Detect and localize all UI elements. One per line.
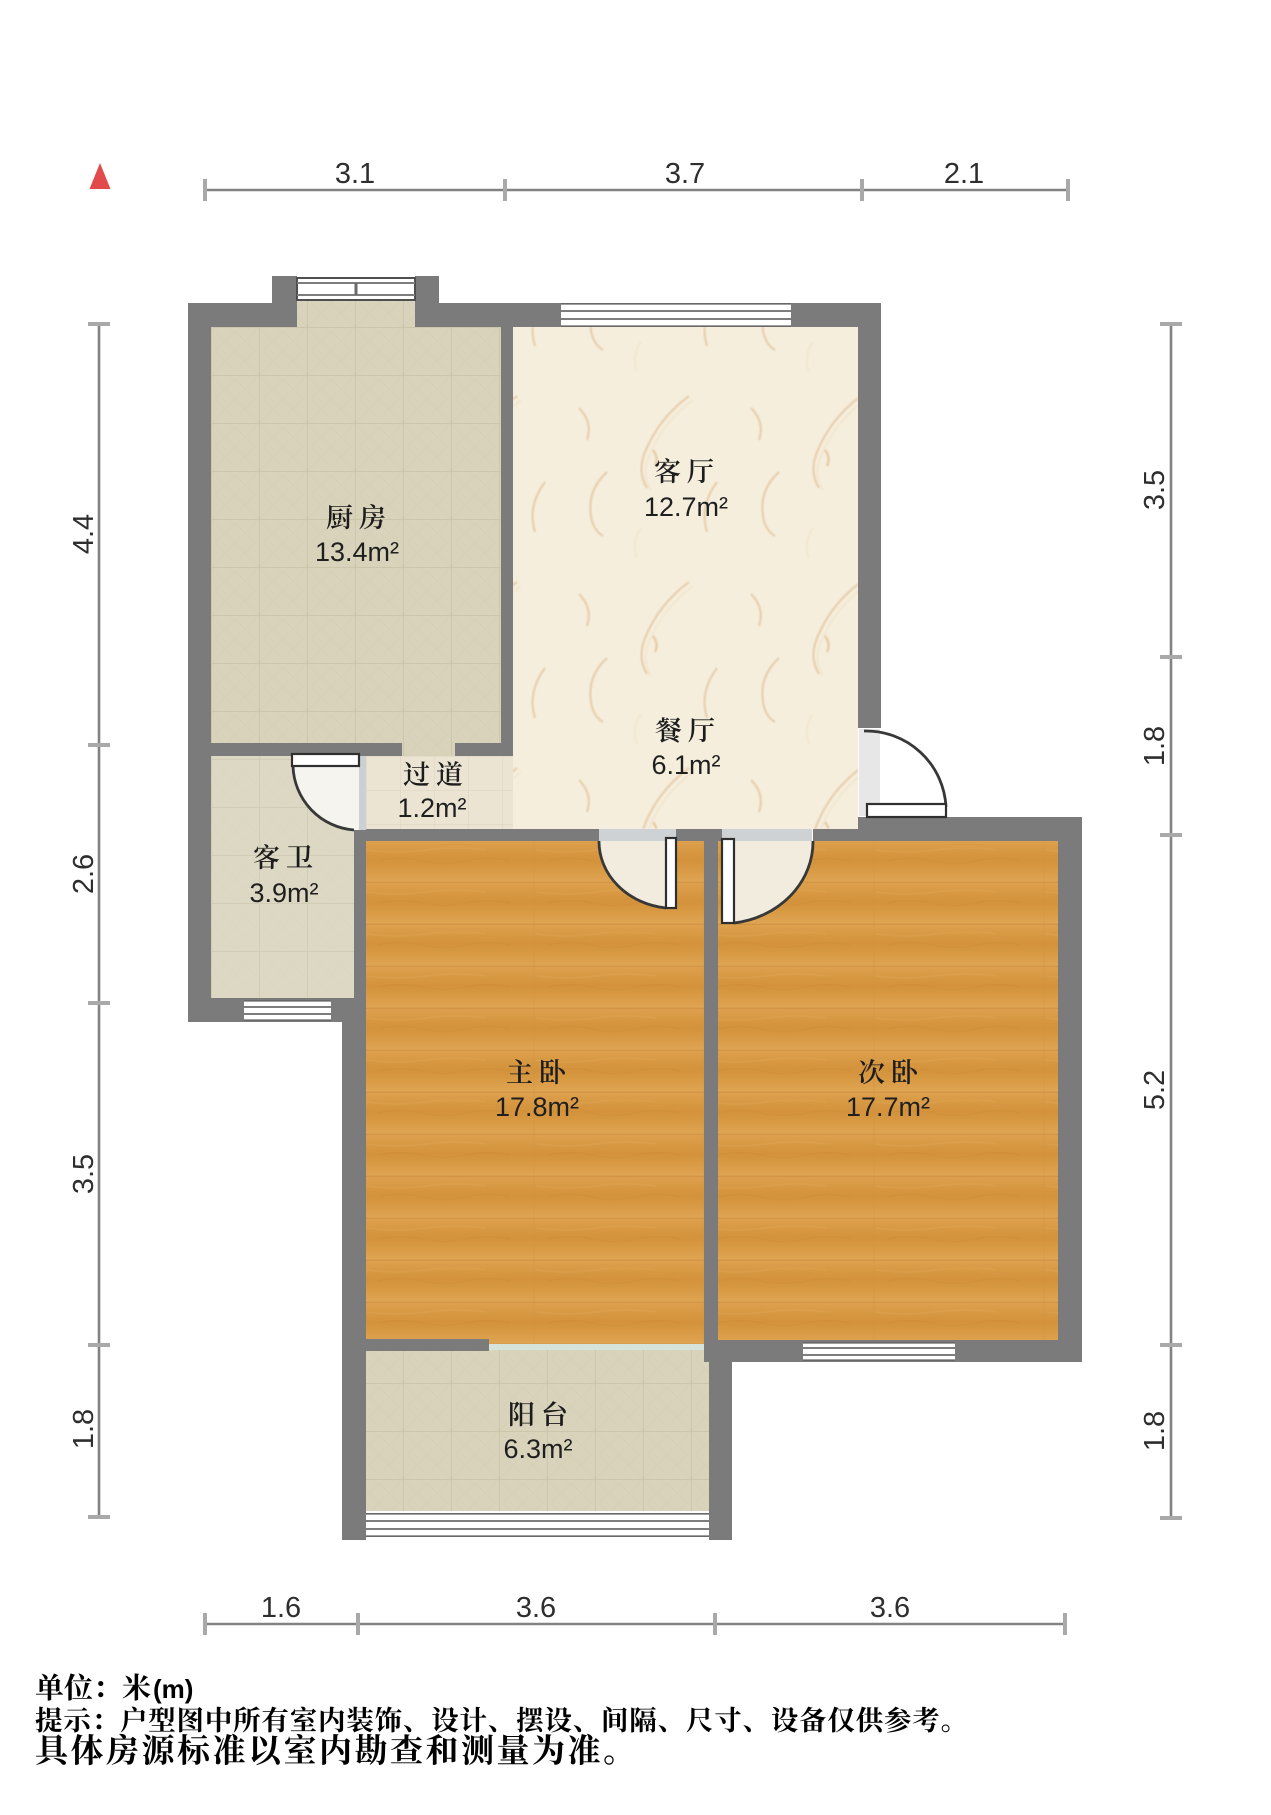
svg-text:2.6: 2.6: [68, 854, 100, 894]
svg-text:13.4m²: 13.4m²: [315, 537, 399, 567]
svg-text:3.1: 3.1: [335, 158, 375, 190]
svg-text:4.4: 4.4: [68, 514, 100, 554]
svg-text:3.5: 3.5: [1139, 470, 1171, 510]
svg-text:3.6: 3.6: [870, 1592, 910, 1624]
svg-text:3.6: 3.6: [516, 1592, 556, 1624]
svg-text:1.2m²: 1.2m²: [397, 793, 466, 823]
svg-text:(m): (m): [153, 1674, 193, 1704]
svg-text:2.1: 2.1: [944, 158, 984, 190]
svg-text:6.1m²: 6.1m²: [651, 750, 720, 780]
svg-text:3.9m²: 3.9m²: [249, 878, 318, 908]
svg-text:1.8: 1.8: [68, 1409, 100, 1449]
svg-text:17.7m²: 17.7m²: [846, 1092, 930, 1122]
svg-text:5.2: 5.2: [1139, 1070, 1171, 1110]
svg-text:6.3m²: 6.3m²: [503, 1434, 572, 1464]
svg-text:3.5: 3.5: [68, 1154, 100, 1194]
svg-text:12.7m²: 12.7m²: [644, 492, 728, 522]
svg-text:3.7: 3.7: [665, 158, 705, 190]
svg-text:1.8: 1.8: [1139, 1411, 1171, 1451]
svg-text:1.8: 1.8: [1139, 726, 1171, 766]
svg-text:17.8m²: 17.8m²: [495, 1092, 579, 1122]
svg-text:1.6: 1.6: [261, 1592, 301, 1624]
